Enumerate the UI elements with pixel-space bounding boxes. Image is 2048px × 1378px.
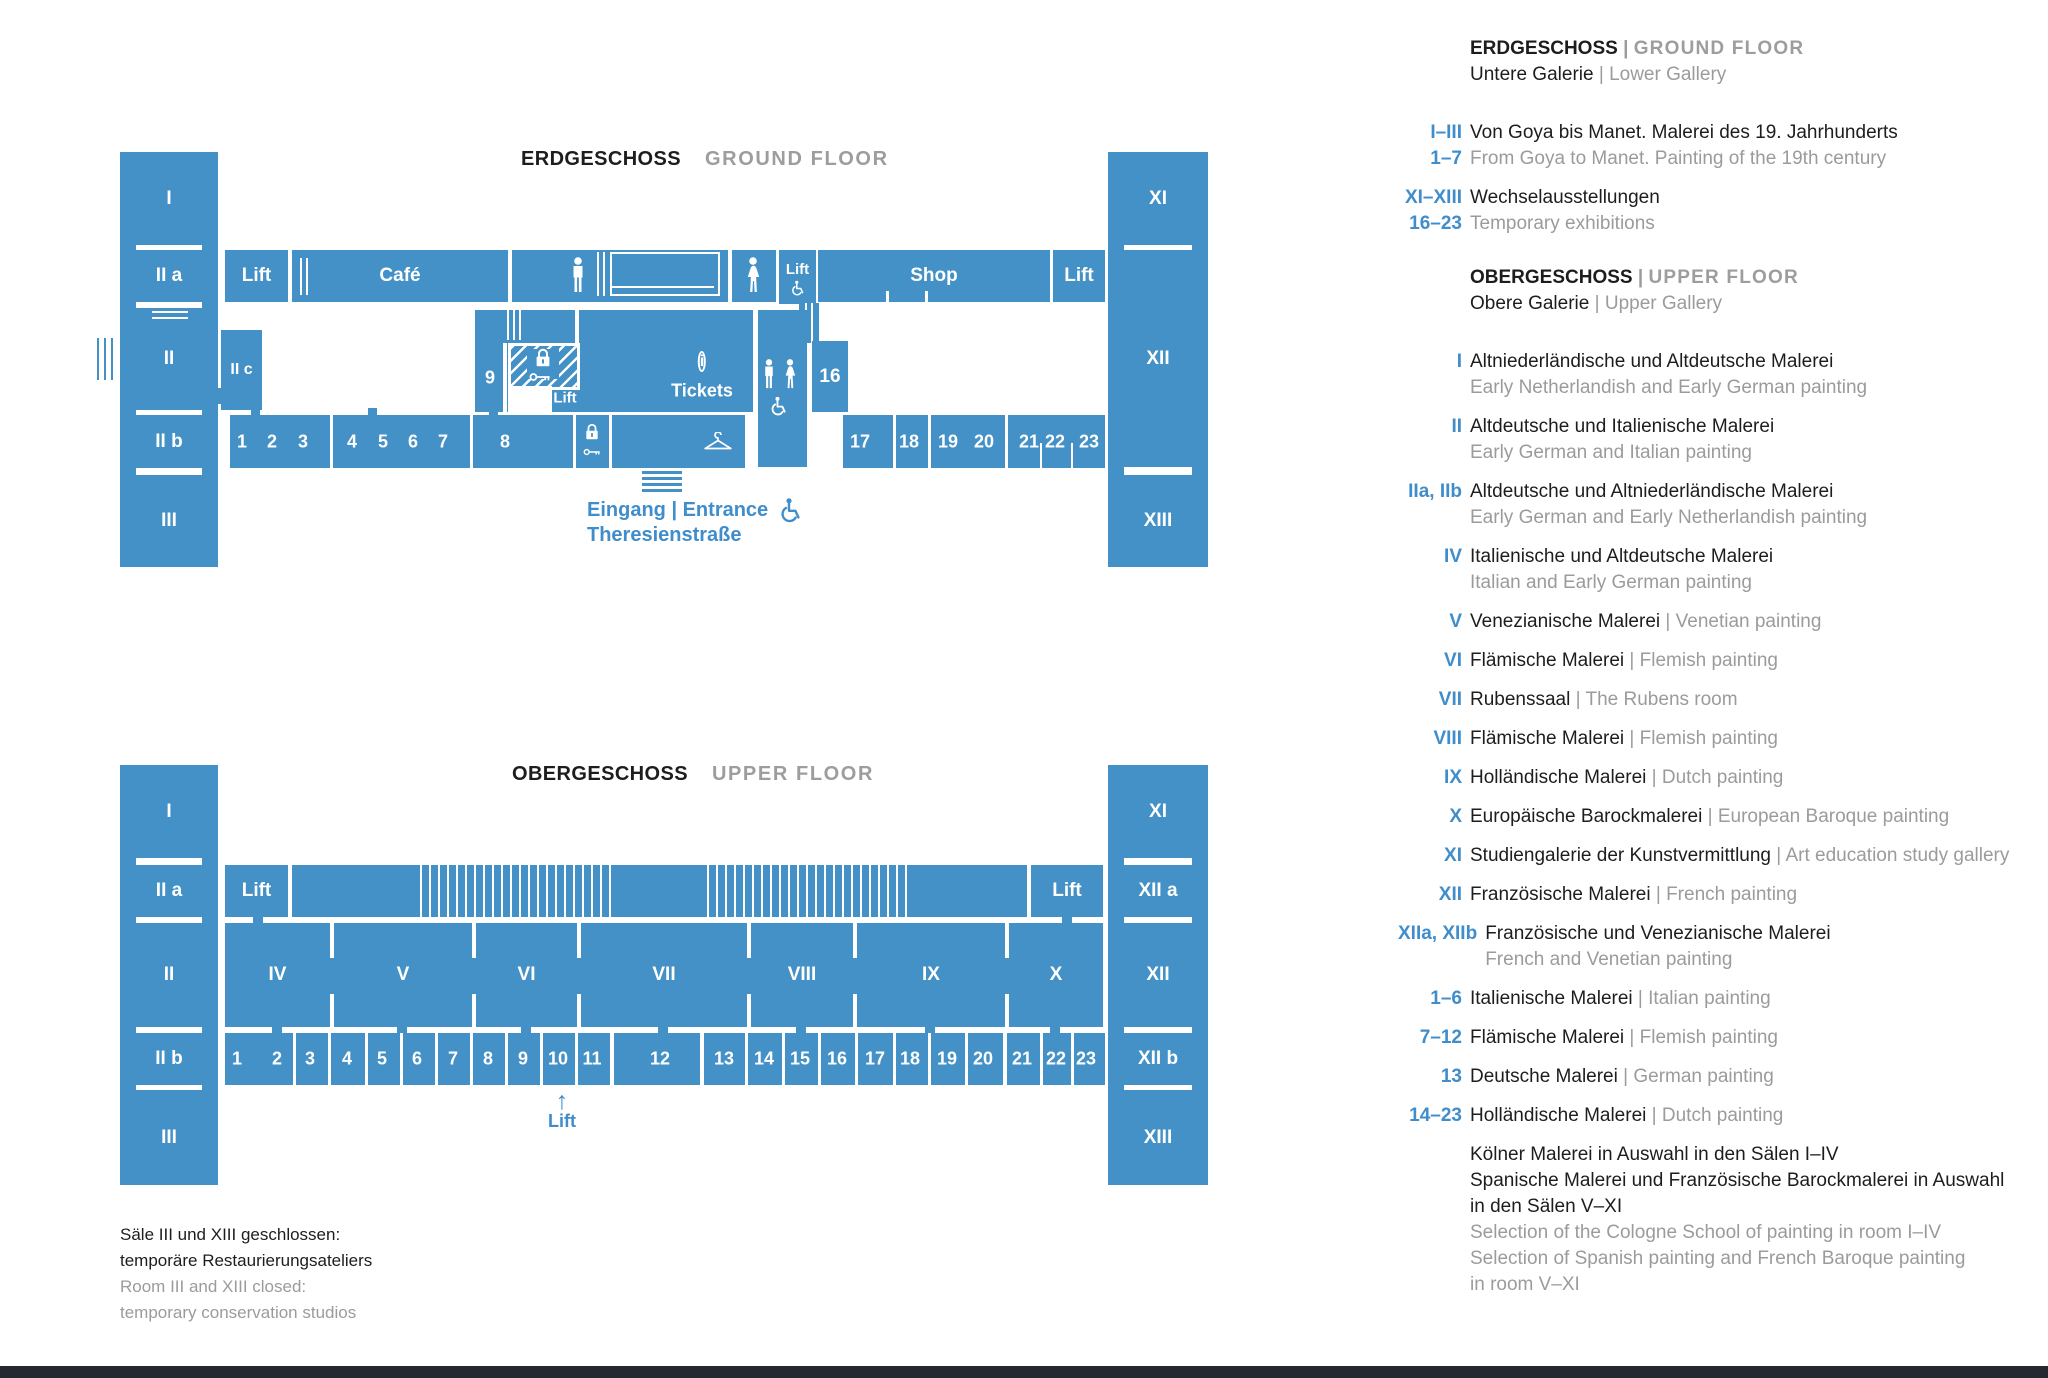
room-code: 14–23 bbox=[1409, 1103, 1462, 1129]
room-label: Lift bbox=[1064, 265, 1094, 287]
room-code: 7–12 bbox=[1420, 1025, 1462, 1051]
door-mark bbox=[925, 291, 928, 302]
legend-item: XI–XIII16–23 WechselausstellungenTempora… bbox=[1398, 185, 2046, 237]
room-IV: IV bbox=[225, 923, 330, 1027]
legend-item: VII Rubenssaal | The Rubens room bbox=[1398, 687, 2046, 713]
room-code: I bbox=[1457, 349, 1462, 375]
legend: ERDGESCHOSS | GROUND FLOOR Untere Galeri… bbox=[1398, 36, 2046, 1298]
legend-gf-title-de: ERDGESCHOSS bbox=[1470, 38, 1618, 59]
wall-tab bbox=[202, 1027, 218, 1033]
wall-tab bbox=[1108, 467, 1124, 475]
wall bbox=[1003, 1033, 1007, 1085]
room-number: 17 bbox=[850, 432, 870, 453]
legend-text-en: Early Netherlandish and Early German pai… bbox=[1470, 375, 2046, 401]
lift-shaft-cutout bbox=[508, 386, 552, 412]
room-number: 23 bbox=[1079, 432, 1099, 453]
room-number: 16 bbox=[827, 1049, 847, 1070]
room-number: 20 bbox=[974, 432, 994, 453]
womens-toilet-icon bbox=[744, 257, 763, 293]
stairwell bbox=[610, 252, 720, 296]
legend-text-de: Rubenssaal bbox=[1470, 689, 1570, 710]
stairs-mark bbox=[597, 252, 599, 296]
key-icon bbox=[529, 372, 551, 382]
steps-mark bbox=[97, 338, 99, 380]
room-code: I–III bbox=[1430, 120, 1462, 146]
footnote-en: in room V–XI bbox=[1470, 1272, 2046, 1298]
room-I: I bbox=[120, 152, 218, 245]
upper-floor-title-de: OBERGESCHOSS bbox=[512, 763, 688, 786]
door-gap bbox=[251, 408, 260, 417]
legend-text-de: Französische und Venezianische Malerei bbox=[1485, 921, 2046, 947]
door-gap bbox=[1004, 958, 1010, 994]
legend-item: XIIa, XIIb Französische und Venezianisch… bbox=[1398, 921, 2046, 973]
room-label: V bbox=[397, 964, 410, 986]
entrance-note: Eingang | Entrance Theresienstraße bbox=[587, 497, 804, 548]
room-label: Lift bbox=[242, 265, 272, 287]
steps-mark bbox=[642, 471, 682, 474]
legend-text-de: Flämische Malerei bbox=[1470, 650, 1624, 671]
wall-tab bbox=[202, 410, 218, 415]
room-number: 13 bbox=[714, 1049, 734, 1070]
room-code: 13 bbox=[1441, 1064, 1462, 1090]
room-label: VI bbox=[518, 964, 536, 986]
room-number: 21 bbox=[1012, 1049, 1032, 1070]
room-label: IV bbox=[269, 964, 287, 986]
wall-tab bbox=[1192, 858, 1208, 865]
room-number: 22 bbox=[1045, 432, 1065, 453]
room-code: 1–7 bbox=[1430, 146, 1462, 172]
room-label: I bbox=[166, 188, 171, 210]
legend-text-de: Altniederländische und Altdeutsche Maler… bbox=[1470, 349, 2046, 375]
wall bbox=[818, 1033, 821, 1085]
wall bbox=[782, 1033, 785, 1085]
room-label: XIII bbox=[1144, 1127, 1173, 1149]
closure-note-en2: temporary conservation studios bbox=[120, 1300, 372, 1326]
mens-toilet-icon bbox=[763, 359, 776, 389]
stairs-mark bbox=[612, 286, 714, 288]
wall bbox=[893, 1033, 896, 1085]
room-label: X bbox=[1050, 964, 1063, 986]
room-XIIb: XII b bbox=[1108, 1033, 1208, 1085]
legend-item: I–III1–7 Von Goya bis Manet. Malerei des… bbox=[1398, 120, 2046, 172]
steps-mark bbox=[104, 338, 106, 380]
room-IIb: II b bbox=[120, 415, 218, 468]
coat-hanger-icon bbox=[703, 432, 733, 450]
legend-text-en: French and Venetian painting bbox=[1485, 947, 2046, 973]
room-number: 23 bbox=[1076, 1049, 1096, 1070]
room-XIII: XIII bbox=[1108, 475, 1208, 567]
room-XI: XI bbox=[1108, 152, 1208, 245]
wall-tab bbox=[1192, 1027, 1208, 1033]
wall bbox=[928, 1033, 931, 1085]
legend-text-en: European Baroque painting bbox=[1718, 806, 1949, 827]
legend-of-title-de: OBERGESCHOSS bbox=[1470, 267, 1633, 288]
ground-floor-title: ERDGESCHOSS GROUND FLOOR bbox=[521, 148, 889, 171]
room-label: III bbox=[161, 510, 177, 532]
legend-item: 13 Deutsche Malerei | German painting bbox=[1398, 1064, 2046, 1090]
legend-gf-header: ERDGESCHOSS | GROUND FLOOR Untere Galeri… bbox=[1470, 36, 2046, 88]
room-lift-accessible: Lift bbox=[779, 250, 816, 304]
stairs-mark bbox=[513, 310, 515, 340]
wall-tab bbox=[1108, 917, 1124, 923]
wall-tab bbox=[202, 917, 218, 923]
room-number: 15 bbox=[790, 1049, 810, 1070]
legend-of-title-en: UPPER FLOOR bbox=[1648, 267, 1798, 288]
lock-icon bbox=[584, 423, 600, 441]
wall bbox=[435, 1033, 438, 1085]
entrance-line2: Theresienstraße bbox=[587, 524, 742, 546]
wall bbox=[400, 1033, 403, 1085]
door-gap bbox=[746, 958, 752, 994]
door-gap bbox=[216, 388, 223, 404]
room-number: 19 bbox=[937, 1049, 957, 1070]
legend-text-en: Art education study gallery bbox=[1785, 845, 2009, 866]
womens-toilet-icon bbox=[782, 359, 798, 389]
room-code: XIIa, XIIb bbox=[1398, 921, 1477, 947]
wall-tab bbox=[202, 302, 218, 308]
room-VIII: VIII bbox=[751, 923, 853, 1027]
wall bbox=[505, 1033, 508, 1085]
closure-note-de2: temporäre Restaurierungsateliers bbox=[120, 1248, 372, 1274]
legend-item: IX Holländische Malerei | Dutch painting bbox=[1398, 765, 2046, 791]
legend-text-en: Dutch painting bbox=[1662, 767, 1783, 788]
room-shop: Shop bbox=[818, 250, 1050, 302]
room-label: XII b bbox=[1138, 1048, 1178, 1070]
door-gap bbox=[1062, 917, 1072, 923]
room-IX: IX bbox=[857, 923, 1005, 1027]
wall bbox=[575, 1033, 578, 1085]
wall bbox=[1040, 443, 1042, 468]
legend-text-en: Early German and Italian painting bbox=[1470, 440, 2046, 466]
legend-item: VI Flämische Malerei | Flemish painting bbox=[1398, 648, 2046, 674]
door-gap bbox=[489, 408, 498, 417]
legend-text-de: Altdeutsche und Altniederländische Maler… bbox=[1470, 479, 2046, 505]
room-XII: XII bbox=[1108, 923, 1208, 1027]
legend-text-de: Von Goya bis Manet. Malerei des 19. Jahr… bbox=[1470, 120, 2046, 146]
room-number: 12 bbox=[650, 1049, 670, 1070]
lift-label: Lift bbox=[553, 390, 576, 407]
room-label: II b bbox=[155, 1048, 182, 1070]
wall-tab bbox=[202, 245, 218, 250]
footnote-de: Spanische Malerei und Französische Baroc… bbox=[1470, 1168, 2046, 1194]
room-8 bbox=[473, 415, 573, 468]
room-lift: Lift bbox=[225, 250, 288, 302]
up-arrow-icon: ↑ bbox=[556, 1090, 569, 1112]
wall-tab bbox=[120, 1085, 136, 1090]
legend-text-en: Italian painting bbox=[1648, 988, 1771, 1009]
legend-text-de: Flämische Malerei bbox=[1470, 728, 1624, 749]
legend-text-en: Early German and Early Netherlandish pai… bbox=[1470, 505, 2046, 531]
room-number: 8 bbox=[483, 1049, 493, 1070]
legend-text-de: Französische Malerei bbox=[1470, 884, 1651, 905]
entrance-line1: Eingang | Entrance bbox=[587, 498, 768, 523]
legend-item: X Europäische Barockmalerei | European B… bbox=[1398, 804, 2046, 830]
legend-item: XII Französische Malerei | French painti… bbox=[1398, 882, 2046, 908]
room-II: II bbox=[120, 923, 218, 1027]
stairs-mark bbox=[507, 310, 509, 340]
room-number: 10 bbox=[548, 1049, 568, 1070]
legend-text-en: Flemish painting bbox=[1640, 650, 1778, 671]
door-mark bbox=[306, 258, 308, 295]
wall-tab bbox=[120, 245, 136, 250]
lift-pointer-label: Lift bbox=[548, 1112, 576, 1131]
room-label: II a bbox=[156, 265, 182, 287]
wall-tab bbox=[1108, 1085, 1124, 1090]
legend-gf-subtitle-en: Lower Gallery bbox=[1609, 64, 1726, 85]
wall-tab bbox=[1192, 1085, 1208, 1090]
legend-item: V Venezianische Malerei | Venetian paint… bbox=[1398, 609, 2046, 635]
room-number: 5 bbox=[378, 432, 388, 453]
legend-item: 1–6 Italienische Malerei | Italian paint… bbox=[1398, 986, 2046, 1012]
room-XIIa: XII a bbox=[1108, 865, 1208, 917]
room-label: XIII bbox=[1144, 510, 1173, 532]
room-code: VI bbox=[1444, 648, 1462, 674]
footer-bar bbox=[0, 1366, 2048, 1378]
room-number: 22 bbox=[1046, 1049, 1066, 1070]
info-icon: i bbox=[698, 349, 706, 375]
room-number: 20 bbox=[973, 1049, 993, 1070]
upper-floor-title: OBERGESCHOSS UPPER FLOOR bbox=[512, 763, 874, 786]
room-label: 16 bbox=[819, 366, 840, 388]
stairs-mark bbox=[152, 311, 188, 313]
wall-tab bbox=[1192, 917, 1208, 923]
museum-floor-plan-page: ERDGESCHOSS GROUND FLOOR I II a II II c … bbox=[0, 0, 2048, 1378]
wall-tab bbox=[120, 858, 136, 865]
legend-text-de: Holländische Malerei bbox=[1470, 767, 1646, 788]
legend-text-en: Venetian painting bbox=[1676, 611, 1822, 632]
corridor bbox=[292, 865, 1027, 917]
room-label: XII bbox=[1146, 348, 1169, 370]
room-number: 3 bbox=[305, 1049, 315, 1070]
room-number: 1 bbox=[237, 432, 247, 453]
room-IIa: II a bbox=[120, 250, 218, 302]
room-label: Lift bbox=[242, 880, 272, 902]
room-code: V bbox=[1449, 609, 1462, 635]
room-code: XII bbox=[1439, 882, 1462, 908]
wall-tab bbox=[1108, 858, 1124, 865]
legend-text-de: Europäische Barockmalerei bbox=[1470, 806, 1702, 827]
room-number: 18 bbox=[900, 1049, 920, 1070]
room-VI: VI bbox=[476, 923, 577, 1027]
wall bbox=[293, 1033, 296, 1085]
wall-tab bbox=[1192, 245, 1208, 250]
room-number: 9 bbox=[518, 1049, 528, 1070]
legend-text-de: Venezianische Malerei bbox=[1470, 611, 1660, 632]
steps-mark bbox=[642, 483, 682, 486]
door-mark bbox=[300, 258, 302, 295]
steps-mark bbox=[642, 477, 682, 480]
room-VII: VII bbox=[581, 923, 747, 1027]
legend-item: XI Studiengalerie der Kunstvermittlung |… bbox=[1398, 843, 2046, 869]
room-cafe: Café bbox=[292, 250, 508, 302]
room-number: 6 bbox=[408, 432, 418, 453]
room-code: VII bbox=[1439, 687, 1462, 713]
room-number: 18 bbox=[899, 432, 919, 453]
footnote-de: Kölner Malerei in Auswahl in den Sälen I… bbox=[1470, 1142, 2046, 1168]
wall-tab bbox=[202, 858, 218, 865]
wheelchair-icon bbox=[778, 497, 804, 523]
room-code: XI bbox=[1444, 843, 1462, 869]
room-label: Shop bbox=[910, 265, 958, 287]
wall bbox=[575, 310, 579, 344]
room-label: II bbox=[164, 964, 175, 986]
room-code: IX bbox=[1444, 765, 1462, 791]
room-lift: Lift bbox=[1031, 865, 1103, 917]
legend-item: 7–12 Flämische Malerei | Flemish paintin… bbox=[1398, 1025, 2046, 1051]
room-label: II b bbox=[155, 431, 182, 453]
legend-item: II Altdeutsche und Italienische MalereiE… bbox=[1398, 414, 2046, 466]
stairs-mark bbox=[603, 252, 605, 296]
room-number: 21 bbox=[1019, 432, 1039, 453]
wall-tab bbox=[202, 468, 218, 475]
room-X: X bbox=[1009, 923, 1103, 1027]
legend-text-en: Flemish painting bbox=[1640, 728, 1778, 749]
room-label: Café bbox=[379, 265, 420, 287]
room-label: XII a bbox=[1138, 880, 1177, 902]
door-gap bbox=[368, 408, 377, 417]
footnote-en: Selection of the Cologne School of paint… bbox=[1470, 1220, 2046, 1246]
room-label: II bbox=[164, 348, 175, 370]
room-label: II c bbox=[230, 361, 252, 379]
room-lift: Lift bbox=[1053, 250, 1105, 302]
legend-gf-subtitle-de: Untere Galerie bbox=[1470, 64, 1594, 85]
key-icon bbox=[583, 448, 601, 456]
room-number: 5 bbox=[377, 1049, 387, 1070]
steps-mark bbox=[111, 338, 113, 380]
wall bbox=[700, 1033, 704, 1085]
room-label: VIII bbox=[788, 964, 817, 986]
wall-tab bbox=[1192, 467, 1208, 475]
wall-tab bbox=[1108, 1027, 1124, 1033]
legend-text-en: French painting bbox=[1666, 884, 1797, 905]
stairs-hatch bbox=[707, 865, 907, 917]
footnote-de: in den Sälen V–XI bbox=[1470, 1194, 2046, 1220]
lift-shaft-mark bbox=[811, 303, 813, 343]
wall bbox=[1071, 1033, 1074, 1085]
room-label: IX bbox=[922, 964, 940, 986]
stairs-mark bbox=[152, 317, 188, 319]
room-9-label: 9 bbox=[485, 368, 495, 389]
wall bbox=[540, 1033, 543, 1085]
legend-text-de: Deutsche Malerei bbox=[1470, 1066, 1618, 1087]
closure-note: Säle III und XIII geschlossen: temporäre… bbox=[120, 1222, 372, 1326]
room-label: XII bbox=[1146, 964, 1169, 986]
legend-text-de: Holländische Malerei bbox=[1470, 1105, 1646, 1126]
room-number: 14 bbox=[754, 1049, 774, 1070]
room-code: IIa, IIb bbox=[1408, 479, 1462, 505]
room-label: VII bbox=[652, 964, 675, 986]
wall-tab bbox=[120, 1027, 136, 1033]
room-number: 7 bbox=[448, 1049, 458, 1070]
wall bbox=[855, 1033, 858, 1085]
wall-tab bbox=[1108, 245, 1124, 250]
upper-floor-title-en: UPPER FLOOR bbox=[712, 763, 874, 786]
legend-of-subtitle-de: Obere Galerie bbox=[1470, 293, 1589, 314]
room-V: V bbox=[334, 923, 472, 1027]
room-code: II bbox=[1451, 414, 1462, 440]
room-code: VIII bbox=[1433, 726, 1462, 752]
door-gap bbox=[576, 958, 582, 994]
legend-text-de: Italienische Malerei bbox=[1470, 988, 1633, 1009]
wall-tab bbox=[120, 917, 136, 923]
legend-text-en: Temporary exhibitions bbox=[1470, 211, 2046, 237]
lift-pointer: ↑ Lift bbox=[548, 1090, 576, 1131]
room-label: I bbox=[166, 801, 171, 823]
room-code: IV bbox=[1444, 544, 1462, 570]
room-I: I bbox=[120, 765, 218, 858]
legend-of-header: OBERGESCHOSS | UPPER FLOOR Obere Galerie… bbox=[1470, 265, 2046, 317]
legend-text-de: Wechselausstellungen bbox=[1470, 185, 2046, 211]
wall bbox=[1040, 1033, 1043, 1085]
ground-floor-title-de: ERDGESCHOSS bbox=[521, 148, 681, 171]
lock-icon bbox=[534, 348, 552, 368]
room-label: XI bbox=[1149, 188, 1167, 210]
wall-tab bbox=[202, 1085, 218, 1090]
room-number: 4 bbox=[347, 432, 357, 453]
room-number: 2 bbox=[267, 432, 277, 453]
room-number: 3 bbox=[298, 432, 308, 453]
tickets-label: Tickets bbox=[671, 381, 733, 402]
wall bbox=[965, 1033, 968, 1085]
room-II: II bbox=[120, 308, 218, 410]
legend-footnote: Kölner Malerei in Auswahl in den Sälen I… bbox=[1470, 1142, 2046, 1298]
wall-tab bbox=[120, 410, 136, 415]
legend-item: VIII Flämische Malerei | Flemish paintin… bbox=[1398, 726, 2046, 752]
door-gap bbox=[852, 958, 858, 994]
legend-of-subtitle-en: Upper Gallery bbox=[1605, 293, 1722, 314]
legend-text-de: Italienische und Altdeutsche Malerei bbox=[1470, 544, 2046, 570]
room-code: 1–6 bbox=[1430, 986, 1462, 1012]
room-number: 1 bbox=[232, 1049, 242, 1070]
legend-gf-title-en: GROUND FLOOR bbox=[1634, 38, 1805, 59]
closure-note-en1: Room III and XIII closed: bbox=[120, 1274, 372, 1300]
room-XI: XI bbox=[1108, 765, 1208, 858]
wall bbox=[365, 1033, 368, 1085]
legend-text-en: Dutch painting bbox=[1662, 1105, 1783, 1126]
stairs-mark bbox=[519, 310, 521, 340]
door-gap bbox=[253, 917, 263, 923]
room-number: 6 bbox=[412, 1049, 422, 1070]
room-XIII: XIII bbox=[1108, 1090, 1208, 1185]
room-III: III bbox=[120, 475, 218, 567]
legend-text-en: German painting bbox=[1633, 1066, 1773, 1087]
legend-item: 14–23 Holländische Malerei | Dutch paint… bbox=[1398, 1103, 2046, 1129]
room-III: III bbox=[120, 1090, 218, 1185]
wall-tab bbox=[120, 468, 136, 475]
legend-item: IIa, IIb Altdeutsche und Altniederländis… bbox=[1398, 479, 2046, 531]
wall bbox=[470, 1033, 473, 1085]
room-IIb: II b bbox=[120, 1033, 218, 1085]
room-number: 11 bbox=[582, 1049, 601, 1070]
legend-item: I Altniederländische und Altdeutsche Mal… bbox=[1398, 349, 2046, 401]
legend-text-en: Italian and Early German painting bbox=[1470, 570, 2046, 596]
wheelchair-icon bbox=[769, 396, 789, 416]
room-code: XI–XIII bbox=[1405, 185, 1462, 211]
room-16: 16 bbox=[812, 341, 848, 412]
mens-toilet-icon bbox=[571, 257, 586, 293]
room-label: XI bbox=[1149, 801, 1167, 823]
wall-tab bbox=[120, 302, 136, 308]
wall bbox=[745, 1033, 748, 1085]
room-number: 2 bbox=[272, 1049, 282, 1070]
legend-item: IV Italienische und Altdeutsche MalereiI… bbox=[1398, 544, 2046, 596]
steps-mark bbox=[642, 489, 682, 492]
door-gap bbox=[471, 958, 477, 994]
room-number: 4 bbox=[342, 1049, 352, 1070]
wall bbox=[503, 343, 507, 412]
legend-text-de: Flämische Malerei bbox=[1470, 1027, 1624, 1048]
room-code: X bbox=[1449, 804, 1462, 830]
